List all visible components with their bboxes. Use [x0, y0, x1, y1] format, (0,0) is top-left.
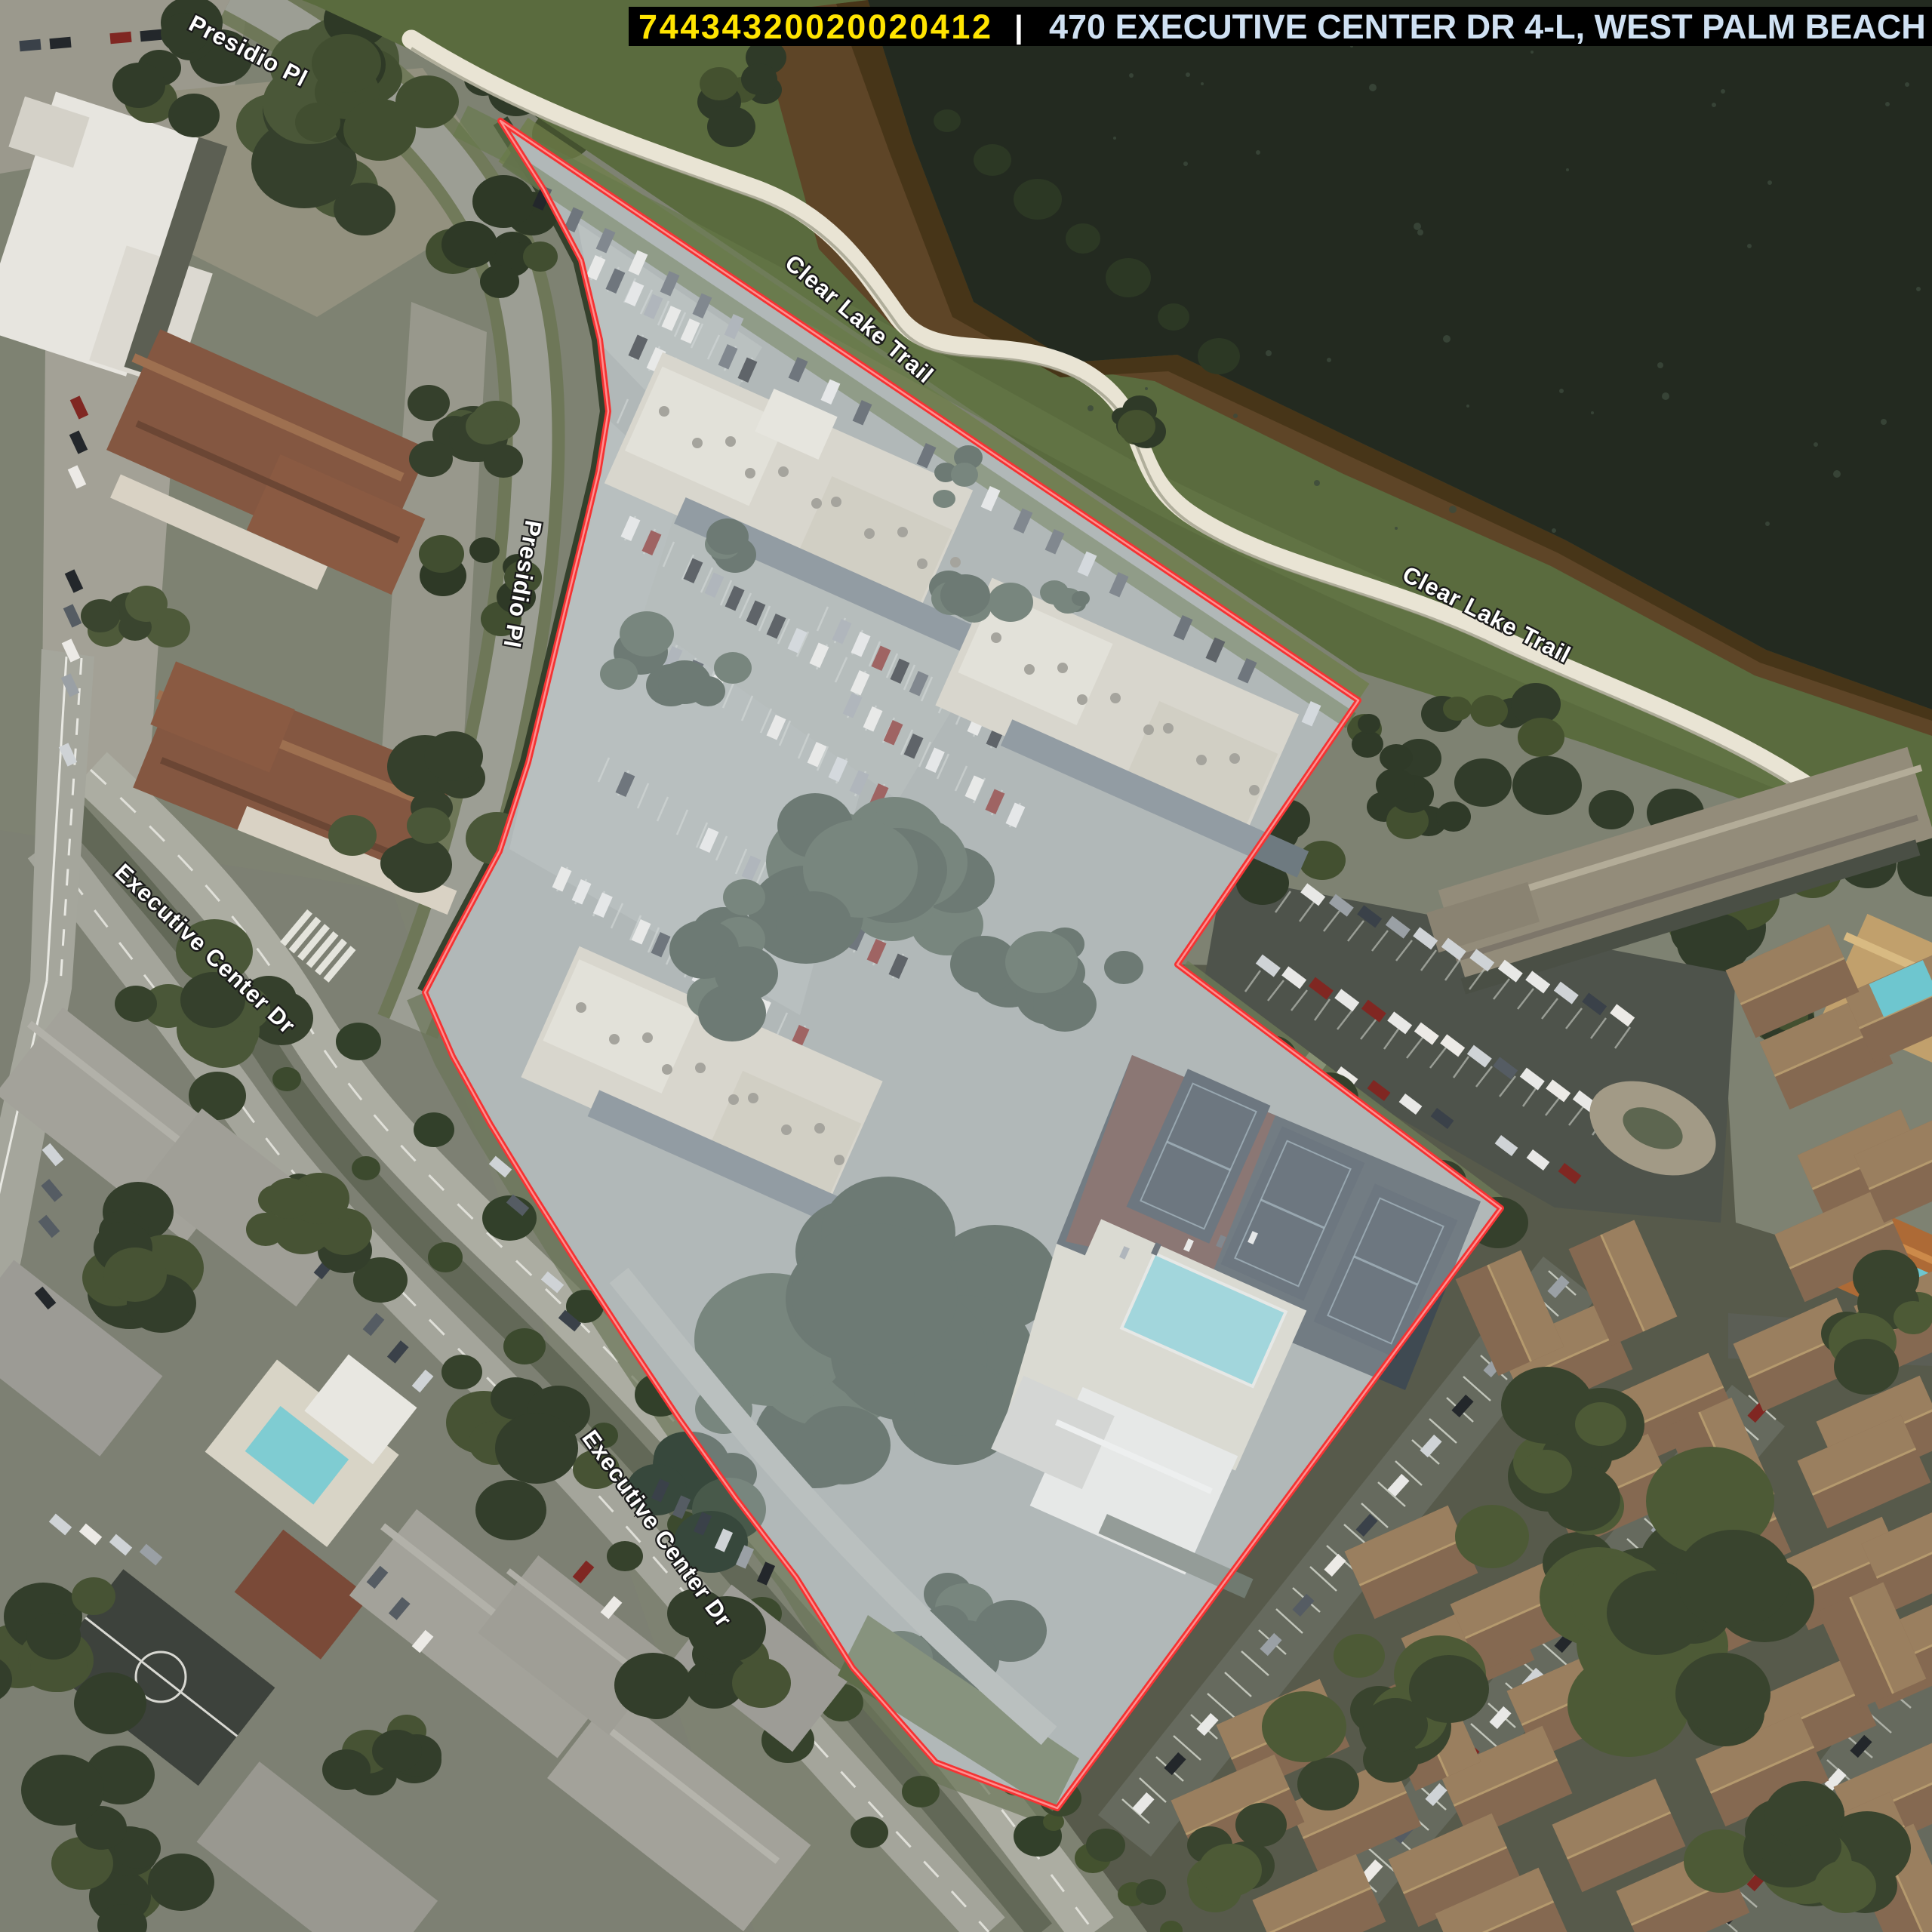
svg-text:470 EXECUTIVE CENTER DR 4-L, W: 470 EXECUTIVE CENTER DR 4-L, WEST PALM B… [1049, 8, 1926, 46]
svg-text:74434320020020412: 74434320020020412 [638, 8, 993, 46]
svg-text:|: | [1014, 9, 1023, 45]
